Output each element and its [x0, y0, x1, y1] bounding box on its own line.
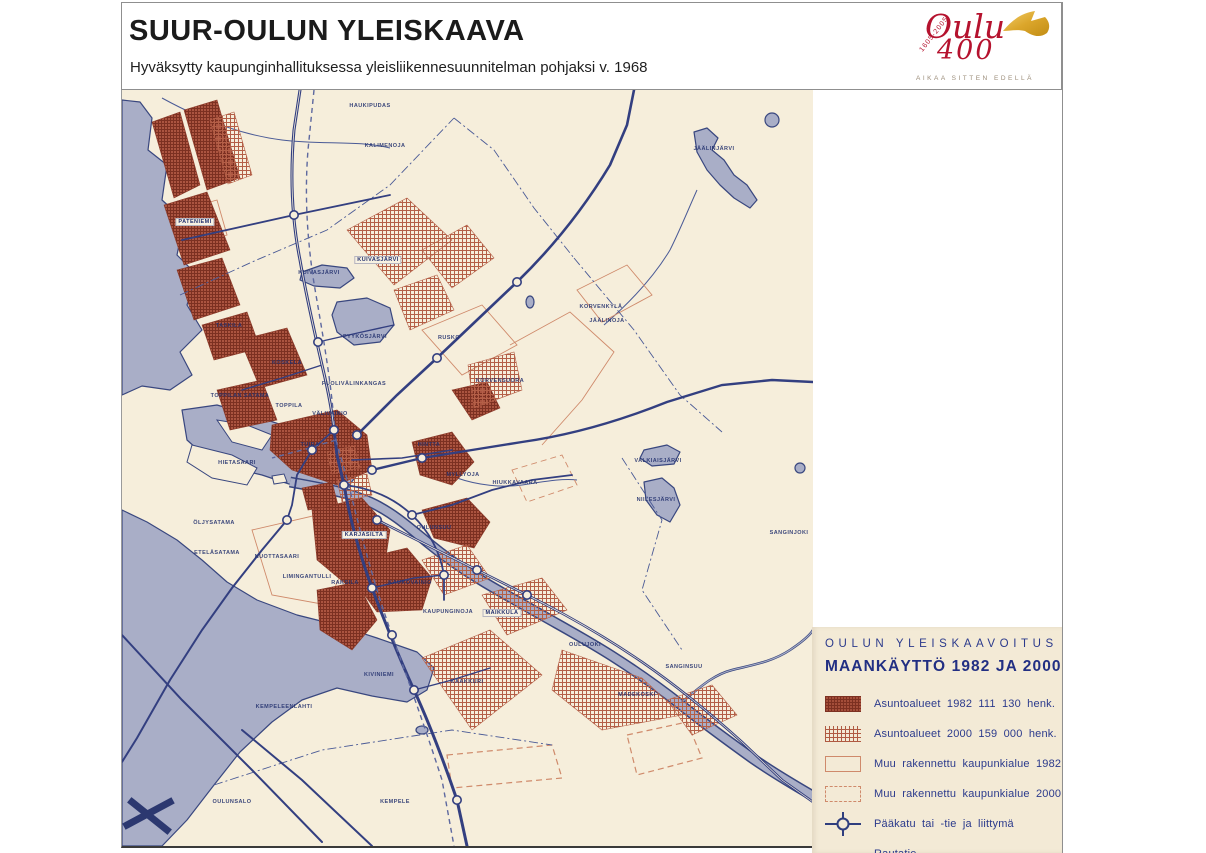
oulu400-logo: 1605-2005 Oulu 400 AIKAA SITTEN EDELLÄ [895, 5, 1055, 89]
map-place-label: KARJASILTA [342, 531, 387, 539]
legend-kicker: OULUN YLEISKAAVOITUS [825, 638, 1062, 650]
map-place-label: TOPPILA [276, 403, 303, 409]
map-place-label: SANGINJOKI [770, 530, 809, 536]
page-frame-line [1062, 2, 1063, 853]
legend-row: Asuntoalueet 2000 159 000 henk. [812, 719, 1062, 749]
map-sheet-header: SUUR-OULUN YLEISKAAVA Hyväksytty kaupung… [121, 2, 1062, 90]
page-subtitle: Hyväksytty kaupunginhallituksessa yleisl… [130, 59, 648, 76]
page-title: SUUR-OULUN YLEISKAAVA [129, 15, 525, 48]
legend-label: Muu rakennettu kaupunkialue 2000 [874, 788, 1061, 800]
map-place-label: MAIKKULA [483, 609, 522, 617]
map-place-label: HIUKKAVAARA [492, 480, 537, 486]
map-place-label: TUIRA [300, 442, 319, 448]
map-place-label: TASKILA [216, 323, 243, 329]
map-place-label: KORVENKYLÄ [580, 304, 623, 310]
map-place-label: KEMPELE [380, 799, 410, 805]
map-place-label: HIETASAARI [218, 460, 256, 466]
legend-label: Pääkatu tai -tie ja liittymä [874, 818, 1014, 830]
map-place-label: TOPPILAN SATAMA [211, 393, 270, 399]
map-canvas: HAUKIPUDASKALIMENOJAJÄÄLINJÄRVIPATENIEMI… [121, 90, 813, 848]
legend-label: Rautatie [874, 848, 917, 853]
map-place-label: KAUKOVAINIO [388, 580, 432, 586]
map-place-label: OULUJOKI [569, 642, 601, 648]
map-legend-panel: OULUN YLEISKAAVOITUS MAANKÄYTTÖ 1982 JA … [812, 627, 1062, 853]
scanned-map-page: SUUR-OULUN YLEISKAAVA Hyväksytty kaupung… [0, 0, 1206, 853]
map-place-label: KALIMENOJA [365, 143, 406, 149]
map-place-label: HAUKIPUDAS [349, 103, 390, 109]
map-place-label: RUSKO [438, 335, 460, 341]
legend-row: Muu rakennettu kaupunkialue 1982 [812, 749, 1062, 779]
logo-number: 400 [937, 35, 995, 66]
legend-row: Muu rakennettu kaupunkialue 2000 [812, 779, 1062, 809]
map-place-label: NUOTTASAARI [255, 554, 300, 560]
legend-title: MAANKÄYTTÖ 1982 JA 2000 [825, 658, 1062, 676]
map-place-label: KAAKKURI [451, 679, 484, 685]
map-place-label: NIILESJÄRVI [637, 497, 676, 503]
legend-swatch-icon [825, 816, 861, 832]
map-place-label: MADEKOSKI [618, 692, 656, 698]
legend-swatch-icon [825, 786, 861, 802]
map-place-label: KIVINIEMI [364, 672, 394, 678]
map-labels-layer: HAUKIPUDASKALIMENOJAJÄÄLINJÄRVIPATENIEMI… [122, 90, 813, 846]
map-place-label: VÄLIVAINIO [312, 411, 348, 417]
map-place-label: JÄÄLINJÄRVI [694, 146, 735, 152]
map-place-label: KAUPUNGINOJA [423, 609, 473, 615]
map-place-label: MYLLYOJA [446, 472, 479, 478]
legend-label: Muu rakennettu kaupunkialue 1982 [874, 758, 1061, 770]
logo-tagline: AIKAA SITTEN EDELLÄ [895, 75, 1055, 82]
map-place-label: HINTTA [418, 442, 440, 448]
map-place-label: PUOLIVÄLINKANGAS [322, 381, 386, 387]
map-place-label: PATENIEMI [175, 218, 214, 226]
legend-label: Asuntoalueet 1982 111 130 henk. [874, 698, 1055, 710]
map-place-label: PYYKÖSJÄRVI [343, 334, 387, 340]
legend-row: Pääkatu tai -tie ja liittymä [812, 809, 1062, 839]
map-place-label: KUIVASJÄRVI [298, 270, 339, 276]
map-place-label: OULUNSUU [417, 525, 452, 531]
map-place-label: JÄÄLINOJA [589, 318, 624, 324]
map-place-label: KOSKELA [272, 360, 302, 366]
map-place-label: RAKSILA [331, 580, 359, 586]
map-place-label: OULUNSALO [213, 799, 252, 805]
legend-swatch-icon [825, 846, 861, 853]
legend-swatch-icon [825, 756, 861, 772]
legend-swatch-icon [825, 696, 861, 712]
flag-icon [1001, 9, 1053, 45]
legend-row: Asuntoalueet 1982 111 130 henk. [812, 689, 1062, 719]
legend-row: Rautatie [812, 839, 1062, 853]
legend-swatch-icon [825, 726, 861, 742]
map-place-label: ETELÄSATAMA [194, 550, 240, 556]
map-place-label: KUIVASJÄRVI [354, 256, 401, 264]
map-place-label: KORVENSUORA [476, 378, 524, 384]
map-place-label: ÖLJYSATAMA [193, 520, 235, 526]
map-place-label: KEMPELEENLAHTI [256, 704, 313, 710]
map-place-label: LIMINGANTULLI [283, 574, 332, 580]
legend-label: Asuntoalueet 2000 159 000 henk. [874, 728, 1057, 740]
map-place-label: SANGINSUU [665, 664, 702, 670]
legend-rows: Asuntoalueet 1982 111 130 henk. Asuntoal… [812, 689, 1062, 853]
map-place-label: VALKIAISJÄRVI [634, 458, 681, 464]
